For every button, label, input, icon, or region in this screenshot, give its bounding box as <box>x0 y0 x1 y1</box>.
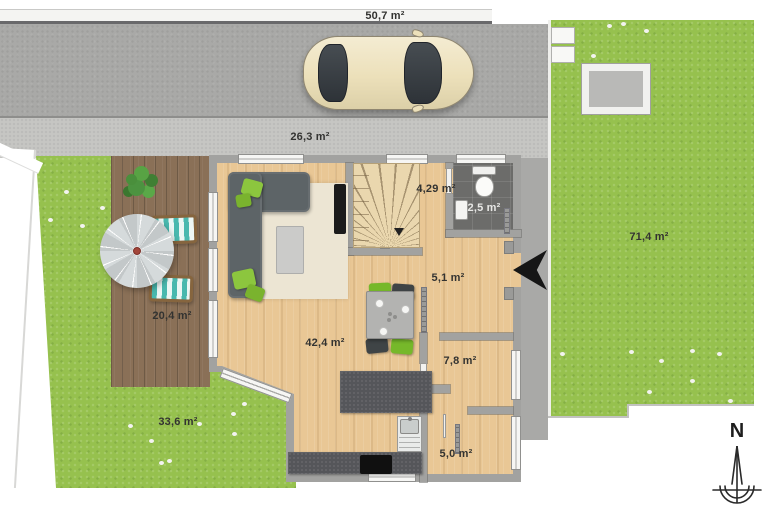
wc-sink <box>455 200 468 220</box>
terrace-door <box>208 300 218 358</box>
kitchen-peninsula <box>340 371 432 413</box>
area-label-garden-left: 33,6 m² <box>158 416 197 428</box>
window <box>208 248 218 292</box>
room-door <box>443 414 446 438</box>
faucet <box>408 417 412 421</box>
interior-wall <box>346 248 422 255</box>
toilet <box>472 166 496 175</box>
door-jamb <box>504 287 514 300</box>
door-jamb <box>504 241 514 254</box>
kitchen-sink <box>400 419 419 434</box>
dining-chair <box>365 337 388 354</box>
garden-stones <box>0 0 5 4</box>
garden-boundary-line <box>627 404 754 406</box>
compass-icon <box>711 446 763 508</box>
property-boundary <box>0 149 36 496</box>
side-path-surface <box>519 158 548 440</box>
window <box>511 416 521 470</box>
toilet <box>475 176 494 197</box>
parasol-pole <box>133 247 141 255</box>
area-label-terrace: 20,4 m² <box>152 310 191 322</box>
area-label-garden-right: 71,4 m² <box>629 231 668 243</box>
plate <box>401 305 410 314</box>
car-windshield <box>404 42 442 104</box>
area-label-living: 42,4 m² <box>305 337 344 349</box>
radiator <box>421 287 427 333</box>
dining-chair <box>390 338 413 355</box>
interior-wall <box>468 407 513 414</box>
pillow <box>235 193 252 208</box>
cooktop <box>360 455 392 474</box>
interior-wall <box>440 333 513 340</box>
floor-plan: 50,7 m² 26,3 m² 71,4 m² 20,4 m² 33,6 m² … <box>0 0 770 513</box>
stair-direction-arrow <box>394 228 404 236</box>
area-label-staircase: 4,29 m² <box>416 183 455 195</box>
window <box>511 350 521 400</box>
area-label-room-medium: 7,8 m² <box>444 355 477 367</box>
staircase-treads <box>353 163 369 248</box>
plate <box>379 327 388 336</box>
front-path-surface <box>0 116 548 158</box>
table-decor <box>388 312 392 316</box>
area-label-hall: 5,1 m² <box>432 272 465 284</box>
area-label-wc: 2,5 m² <box>468 202 501 214</box>
interior-wall <box>420 333 427 363</box>
plate <box>375 299 384 308</box>
area-label-front-path: 26,3 m² <box>290 131 329 143</box>
storage-box <box>551 46 575 63</box>
street-wall <box>0 9 492 24</box>
bush <box>126 174 137 185</box>
window <box>208 192 218 242</box>
garden-right-lawn <box>548 20 754 417</box>
window <box>238 154 304 164</box>
tv-sideboard <box>334 184 346 234</box>
property-boundary <box>0 488 320 513</box>
area-label-room-small: 5,0 m² <box>440 448 473 460</box>
kitchen-drawers <box>399 437 420 449</box>
towel-radiator <box>504 208 510 234</box>
area-label-driveway: 50,7 m² <box>365 10 404 22</box>
compass-north-label: N <box>730 420 744 443</box>
car-rear-window <box>318 44 348 102</box>
kitchen-counter <box>288 452 422 474</box>
garden-boundary-line <box>548 416 629 418</box>
storage-box <box>551 27 575 44</box>
garden-shed <box>582 64 650 114</box>
coffee-table <box>276 226 304 274</box>
